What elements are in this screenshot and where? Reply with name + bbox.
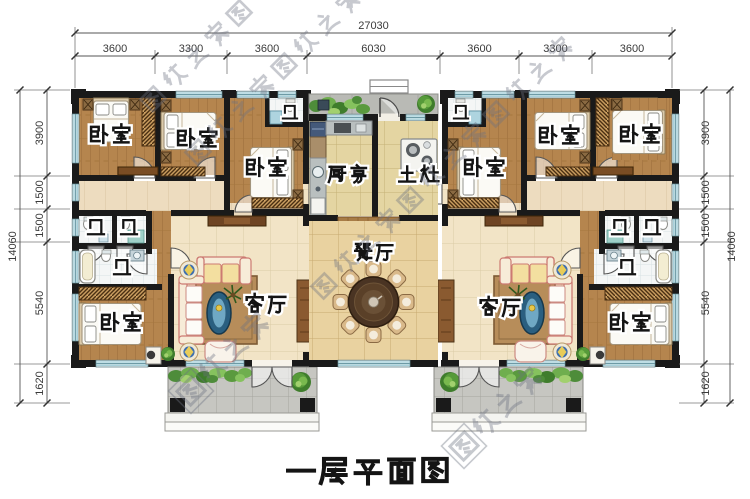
svg-text:1620: 1620 xyxy=(34,371,46,395)
svg-text:14060: 14060 xyxy=(7,231,19,262)
svg-text:3600: 3600 xyxy=(620,43,644,55)
svg-text:3600: 3600 xyxy=(255,43,279,55)
svg-text:14060: 14060 xyxy=(726,231,738,262)
svg-text:5540: 5540 xyxy=(700,291,712,315)
svg-text:1500: 1500 xyxy=(700,180,712,204)
svg-text:3600: 3600 xyxy=(103,43,127,55)
svg-text:1500: 1500 xyxy=(34,213,46,237)
svg-text:5540: 5540 xyxy=(34,291,46,315)
svg-text:3600: 3600 xyxy=(467,43,491,55)
svg-text:3900: 3900 xyxy=(700,121,712,145)
svg-text:27030: 27030 xyxy=(358,20,389,32)
svg-text:1500: 1500 xyxy=(34,180,46,204)
svg-text:1620: 1620 xyxy=(700,371,712,395)
svg-text:1500: 1500 xyxy=(700,213,712,237)
svg-text:3900: 3900 xyxy=(34,121,46,145)
svg-text:6030: 6030 xyxy=(361,43,385,55)
